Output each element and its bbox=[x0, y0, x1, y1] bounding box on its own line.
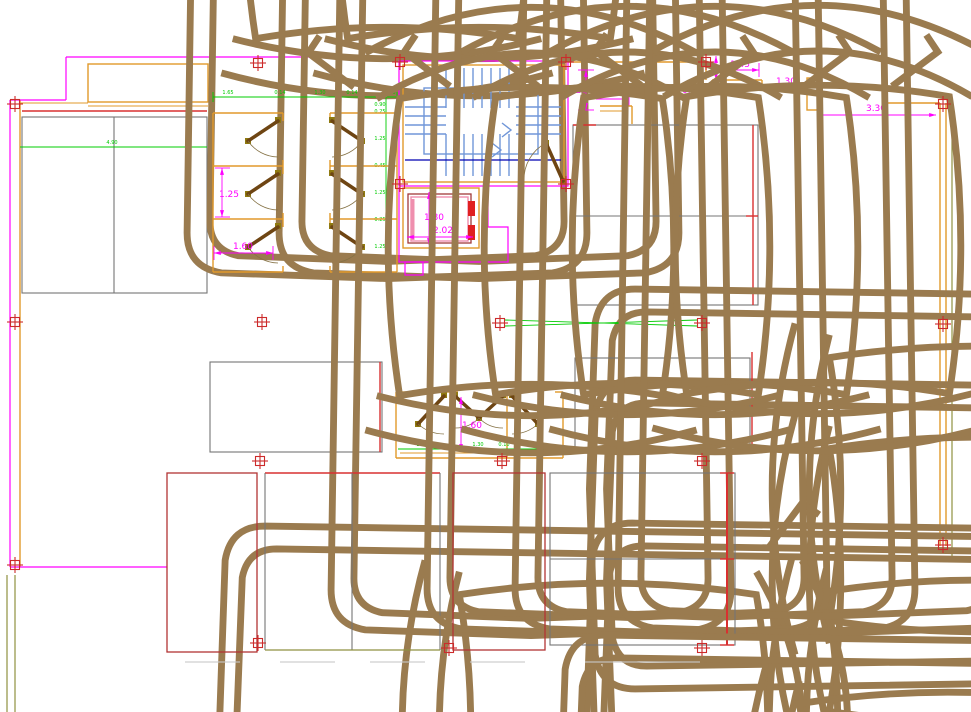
dim-label-green: 1.25 bbox=[374, 190, 385, 196]
dim-label-green: 1.65 bbox=[222, 90, 233, 96]
grid-marker-icon bbox=[694, 640, 710, 656]
floor-plan-canvas: 4.90 1.65 0.14 1.30 0.14 1.50 0.90 0.25 … bbox=[0, 0, 971, 712]
dim-label-stall-width: 4.90 bbox=[106, 140, 117, 146]
grid-marker-icon bbox=[492, 315, 508, 331]
dim-label-elevator-width: 2.02 bbox=[433, 226, 453, 236]
elevator-door bbox=[468, 201, 475, 216]
dim-label-green: 0.90 bbox=[374, 102, 385, 108]
grid-marker-icon bbox=[254, 314, 270, 330]
grid-marker-icon bbox=[252, 453, 268, 469]
dim-label-green: 1.25 bbox=[374, 136, 385, 142]
elevator-door bbox=[468, 225, 475, 240]
grid-marker-icon bbox=[250, 635, 266, 651]
dim-label-green: 1.30 bbox=[314, 90, 325, 96]
dim-label-green: 0.14 bbox=[274, 90, 285, 96]
dim-label-room-door: 1.60 bbox=[233, 242, 253, 252]
dim-label-green: 1.25 bbox=[374, 244, 385, 250]
dim-label-room-height: 1.25 bbox=[219, 190, 239, 200]
dim-label-green: 0.14 bbox=[346, 90, 357, 96]
dim-label-green: 0.25 bbox=[374, 109, 385, 115]
stair-treads-left bbox=[405, 107, 446, 134]
floor-plan: 4.90 1.65 0.14 1.30 0.14 1.50 0.90 0.25 … bbox=[0, 0, 971, 712]
door bbox=[245, 170, 281, 210]
dim-label-green: 0.25 bbox=[374, 217, 385, 223]
grid-marker-icon bbox=[392, 176, 408, 192]
door bbox=[245, 117, 281, 157]
